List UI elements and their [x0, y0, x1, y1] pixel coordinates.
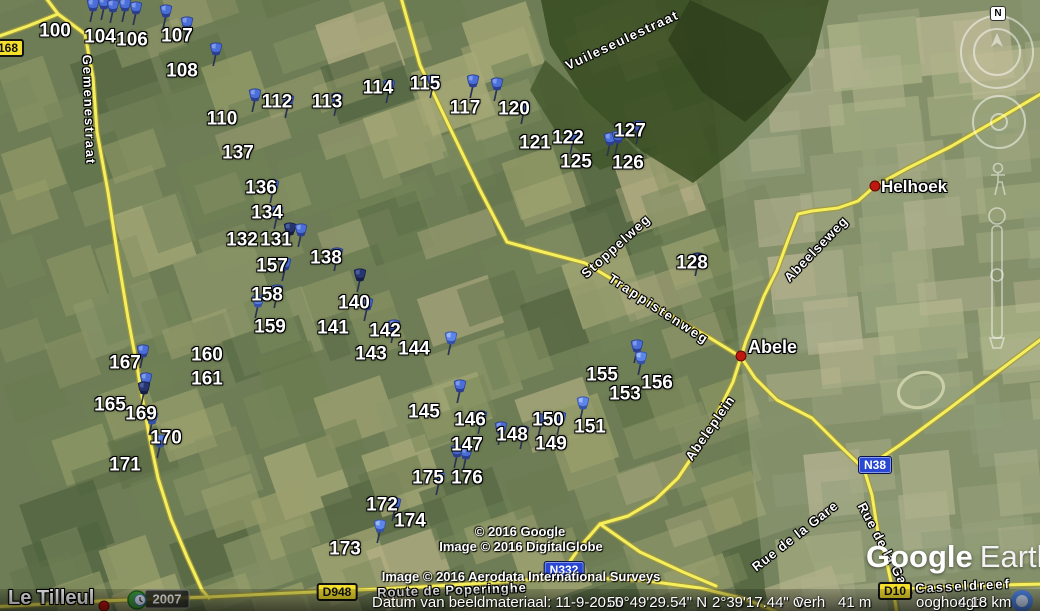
placemark-pin[interactable] — [157, 3, 175, 29]
road-N38 — [864, 337, 1040, 469]
forest-patches — [530, 0, 830, 183]
copyright-line-1: © 2016 Google — [475, 524, 566, 539]
placemark-label-122[interactable]: 122 — [552, 129, 584, 148]
placemark-label-113[interactable]: 113 — [312, 93, 343, 112]
placemark-pin[interactable] — [137, 371, 155, 397]
placemark-pin[interactable] — [492, 420, 510, 446]
placemark-label-137[interactable]: 137 — [222, 144, 254, 163]
place-label-helhoek: Helhoek — [881, 178, 947, 195]
road-Stoppelweg-Trappistenweg — [400, 0, 741, 357]
placemark-pin[interactable] — [351, 267, 369, 293]
road-Gemenestraat-west — [0, 14, 58, 38]
placemark-label-170[interactable]: 170 — [150, 429, 182, 448]
placemark-pin[interactable] — [104, 0, 122, 24]
placemark-pin[interactable] — [292, 222, 310, 248]
place-dot-helhoek[interactable] — [870, 181, 881, 192]
placemark-label-153[interactable]: 153 — [609, 385, 641, 404]
placemark-label-112[interactable]: 112 — [262, 93, 293, 112]
placemark-pin[interactable] — [601, 131, 619, 157]
status-latitude: 50°49'29.54" N — [607, 594, 707, 611]
placemark-label-161[interactable]: 161 — [191, 370, 223, 389]
placemark-pin[interactable] — [135, 380, 153, 406]
logo-google: Google — [866, 539, 973, 574]
placemark-label-107[interactable]: 107 — [161, 27, 193, 46]
placemark-pin[interactable] — [143, 410, 161, 436]
placemark-pin[interactable] — [268, 204, 286, 230]
placemark-pin[interactable] — [268, 283, 286, 309]
placemark-label-132[interactable]: 132 — [226, 231, 258, 250]
placemark-label-159[interactable]: 159 — [254, 318, 286, 337]
placemark-label-146[interactable]: 146 — [454, 411, 486, 430]
placemark-labels-layer: 1001041061071081101121131141151171201211… — [0, 0, 1040, 611]
placemark-label-147[interactable]: 147 — [451, 436, 483, 455]
road-label-vuileseulestraat: Vuileseulestraat — [563, 8, 680, 72]
placemark-label-173[interactable]: 173 — [329, 540, 361, 559]
placemark-label-108[interactable]: 108 — [166, 62, 198, 81]
placemark-pin[interactable] — [246, 87, 264, 113]
placemark-label-149[interactable]: 149 — [535, 435, 567, 454]
placemark-label-165[interactable]: 165 — [94, 396, 126, 415]
placemark-label-144[interactable]: 144 — [398, 340, 430, 359]
placemark-label-171[interactable]: 171 — [109, 456, 141, 475]
placemark-label-104[interactable]: 104 — [84, 28, 116, 47]
placemark-pin[interactable] — [264, 178, 282, 204]
placemark-label-125[interactable]: 125 — [560, 153, 592, 172]
placemark-label-176[interactable]: 176 — [451, 469, 483, 488]
copyright-line-3: Image © 2016 Aerodata International Surv… — [382, 569, 661, 584]
placemark-pins-layer — [0, 0, 1040, 611]
placemark-pin[interactable] — [385, 318, 403, 344]
placemark-pin[interactable] — [514, 424, 532, 450]
compass-north-badge[interactable]: N — [990, 6, 1006, 21]
placemark-label-140[interactable]: 140 — [338, 294, 370, 313]
placemark-pin[interactable] — [689, 251, 707, 277]
road-Abeelseweg — [741, 92, 1040, 357]
status-imagery-date: Datum van beeldmateriaal: 11-9-2015 — [372, 594, 623, 611]
placemark-label-138[interactable]: 138 — [310, 249, 342, 268]
placemark-label-115[interactable]: 115 — [410, 75, 441, 94]
placemark-label-143[interactable]: 143 — [355, 345, 387, 364]
road-shields-layer: 168D948D10N38N3322007 — [0, 0, 1040, 611]
status-longitude: 2°39'17.44" O — [712, 594, 805, 611]
placemark-pin[interactable] — [448, 443, 466, 469]
placemark-pin[interactable] — [151, 433, 169, 459]
placemark-label-169[interactable]: 169 — [125, 405, 157, 424]
placemark-label-145[interactable]: 145 — [408, 403, 440, 422]
placemark-label-120[interactable]: 120 — [498, 100, 530, 119]
placemark-pin[interactable] — [386, 496, 404, 522]
road-Abeleplein — [566, 357, 741, 567]
placemark-label-160[interactable]: 160 — [191, 346, 223, 365]
placemark-label-141[interactable]: 141 — [317, 319, 349, 338]
placemark-label-136[interactable]: 136 — [245, 179, 277, 198]
road-N38 — [864, 337, 1040, 469]
placemark-pin[interactable] — [488, 76, 506, 102]
placemark-pin[interactable] — [457, 445, 475, 471]
place-dot-abele[interactable] — [736, 351, 747, 362]
placemark-pin[interactable] — [609, 129, 627, 155]
placemark-label-175[interactable]: 175 — [412, 469, 444, 488]
placemark-pin[interactable] — [424, 73, 442, 99]
placemark-label-155[interactable]: 155 — [586, 366, 618, 385]
status-elevation-label: verh — [796, 594, 825, 611]
google-earth-logo: GoogleEarth — [866, 539, 1040, 575]
placemark-label-114[interactable]: 114 — [363, 79, 394, 98]
placemark-label-156[interactable]: 156 — [641, 374, 673, 393]
placemark-label-148[interactable]: 148 — [496, 426, 528, 445]
placemark-pin[interactable] — [442, 330, 460, 356]
placemark-label-100[interactable]: 100 — [39, 22, 71, 41]
placemark-pin[interactable] — [371, 518, 389, 544]
placemark-pin[interactable] — [207, 41, 225, 67]
placemark-pin[interactable] — [328, 91, 346, 117]
placemark-pin[interactable] — [515, 99, 533, 125]
road-label-stoppelweg: Stoppelweg — [579, 212, 653, 281]
placemark-pin[interactable] — [328, 246, 346, 272]
placemark-label-128[interactable]: 128 — [676, 254, 708, 273]
placemark-label-172[interactable]: 172 — [366, 496, 398, 515]
placemark-label-121[interactable]: 121 — [519, 134, 551, 153]
placemark-pin[interactable] — [551, 410, 569, 436]
placemark-label-158[interactable]: 158 — [251, 286, 283, 305]
status-eye-altitude: 4.18 km — [958, 594, 1011, 611]
placemark-pin[interactable] — [564, 129, 582, 155]
placemark-pin[interactable] — [279, 93, 297, 119]
placemark-label-174[interactable]: 174 — [394, 512, 426, 531]
zoom-slider — [989, 208, 1005, 348]
placemark-pin[interactable] — [628, 338, 646, 364]
placemark-label-131[interactable]: 131 — [260, 231, 292, 250]
placemark-pin[interactable] — [464, 73, 482, 99]
placemark-pin[interactable] — [276, 256, 294, 282]
placemark-label-117[interactable]: 117 — [450, 99, 481, 118]
map-canvas[interactable]: GemenestraatVuileseulestraatStoppelwegTr… — [0, 0, 1040, 611]
road-Gemenestraat-west — [0, 14, 58, 38]
placemark-label-126[interactable]: 126 — [612, 154, 644, 173]
placemark-pin[interactable] — [84, 0, 102, 23]
compass-ring — [961, 16, 1033, 88]
road-Gemenestraat — [43, 0, 209, 598]
zoom-slider-thumb — [991, 269, 1003, 281]
logo-earth: Earth — [980, 539, 1040, 574]
placemark-label-142[interactable]: 142 — [369, 322, 401, 341]
placemark-label-151[interactable]: 151 — [574, 418, 606, 437]
navigation-controls[interactable] — [0, 0, 1040, 611]
road-shield-168: 168 — [0, 39, 24, 57]
place-label-abele: Abele — [748, 338, 797, 356]
road-Abeleplein — [566, 357, 741, 567]
roads-layer — [0, 0, 1040, 611]
places-layer: HelhoekAbeleLe Tilleul — [0, 0, 1040, 611]
placemark-pin[interactable] — [95, 0, 113, 21]
road-label-gemenestraat: Gemenestraat — [81, 54, 98, 165]
status-elevation: 41 m — [838, 594, 871, 611]
road-label-abeleplein: Abeleplein — [683, 393, 737, 463]
compass-north-arrow — [991, 33, 1003, 47]
road-labels-layer: GemenestraatVuileseulestraatStoppelwegTr… — [0, 0, 1040, 611]
placemark-pin[interactable] — [430, 470, 448, 496]
placemark-pin[interactable] — [281, 221, 299, 247]
placemark-pin[interactable] — [380, 78, 398, 104]
road-label-trappistenweg: Trappistenweg — [606, 272, 711, 347]
placemark-label-134[interactable]: 134 — [251, 204, 283, 223]
placemark-label-157[interactable]: 157 — [256, 257, 288, 276]
road-Stoppelweg-Trappistenweg — [400, 0, 741, 357]
pegman-icon — [991, 164, 1005, 196]
placemark-label-127[interactable]: 127 — [614, 122, 646, 141]
placemark-label-150[interactable]: 150 — [532, 411, 564, 430]
placemark-pin[interactable] — [116, 0, 134, 23]
placemark-pin[interactable] — [134, 343, 152, 369]
copyright-line-2: Image © 2016 DigitalGlobe — [439, 539, 602, 554]
placemark-pin[interactable] — [532, 412, 550, 438]
placemark-pin[interactable] — [472, 409, 490, 435]
placemark-label-106[interactable]: 106 — [116, 31, 148, 50]
placemark-pin[interactable] — [574, 395, 592, 421]
road-label-abeelseweg: Abeelseweg — [782, 214, 851, 284]
placemark-pin[interactable] — [451, 378, 469, 404]
placemark-label-110[interactable]: 110 — [207, 110, 238, 129]
road-Abeelseweg — [741, 92, 1040, 357]
placemark-label-167[interactable]: 167 — [109, 354, 141, 373]
road-Gemenestraat — [43, 0, 209, 598]
placemark-pin[interactable] — [632, 350, 650, 376]
placemark-pin[interactable] — [178, 15, 196, 41]
placemark-pin[interactable] — [249, 293, 267, 319]
placemark-pin[interactable] — [630, 119, 648, 145]
placemark-pin[interactable] — [127, 0, 145, 26]
road-shield-n38: N38 — [858, 456, 892, 474]
placemark-pin[interactable] — [358, 296, 376, 322]
look-joystick-icon — [973, 96, 1025, 148]
road-label-rue-de-la-gare: Rue de la Gare — [750, 499, 841, 574]
satellite-terrain — [0, 0, 1040, 611]
